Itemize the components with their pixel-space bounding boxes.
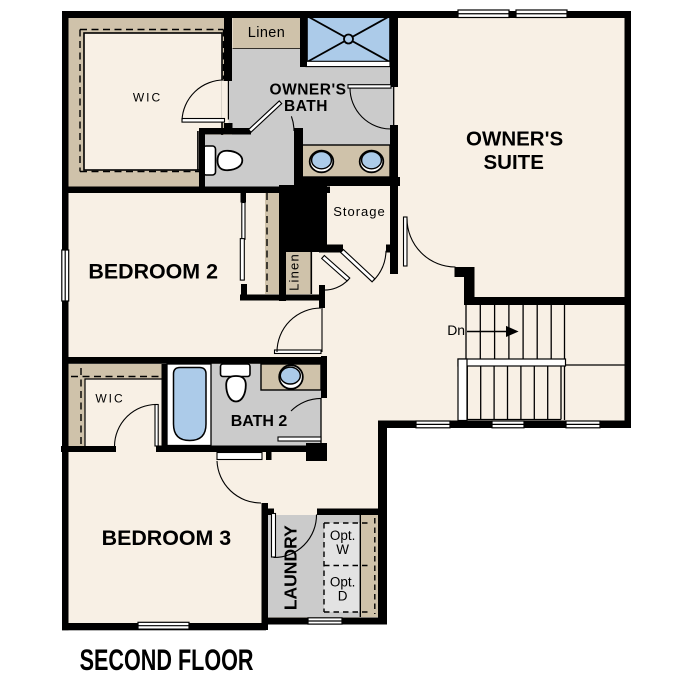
svg-text:Linen: Linen (286, 253, 301, 291)
svg-text:D: D (338, 589, 348, 604)
svg-text:SUITE: SUITE (484, 151, 544, 174)
svg-text:WIC: WIC (133, 91, 162, 105)
svg-text:BATH 2: BATH 2 (231, 413, 288, 430)
svg-text:W: W (336, 542, 349, 557)
svg-text:OWNER'S: OWNER'S (466, 128, 563, 151)
svg-text:BEDROOM 3: BEDROOM 3 (102, 526, 232, 550)
svg-text:LAUNDRY: LAUNDRY (281, 525, 301, 610)
svg-text:Dn: Dn (447, 322, 465, 338)
svg-text:Storage: Storage (333, 204, 386, 219)
svg-text:BATH: BATH (284, 98, 328, 115)
svg-text:WIC: WIC (95, 392, 124, 406)
svg-text:Linen: Linen (248, 25, 285, 41)
svg-text:SECOND FLOOR: SECOND FLOOR (80, 645, 254, 677)
svg-text:Opt.: Opt. (330, 575, 356, 590)
svg-text:BEDROOM 2: BEDROOM 2 (88, 259, 218, 283)
svg-text:Opt.: Opt. (330, 528, 356, 543)
svg-text:OWNER'S: OWNER'S (270, 81, 347, 98)
